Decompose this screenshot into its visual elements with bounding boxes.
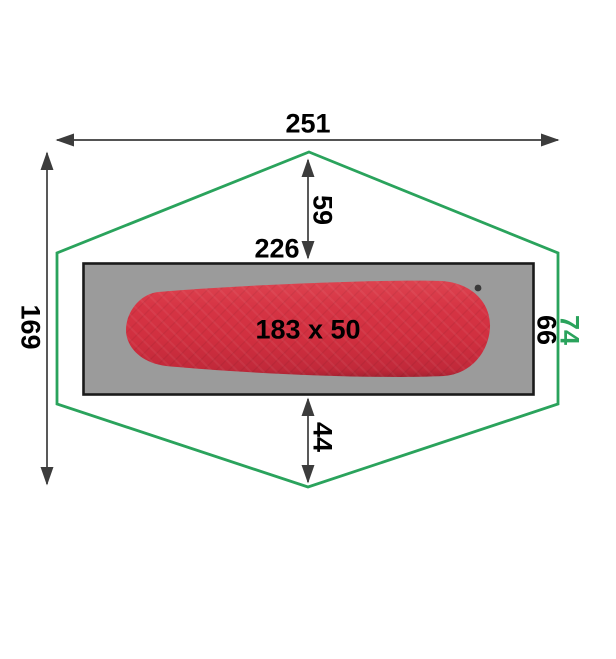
- mat-size-label: 183 x 50: [255, 317, 360, 344]
- dim-label-floor-width: 226: [254, 236, 299, 263]
- tent-dimension-diagram: 251 169 59 226 66 74 44 183 x 50: [0, 0, 616, 659]
- dim-label-outer-width: 251: [285, 111, 330, 138]
- dim-label-side-length: 74: [556, 315, 583, 345]
- dim-label-rear-apex-depth: 44: [309, 422, 336, 452]
- mat-valve: [475, 285, 482, 292]
- dim-label-outer-height: 169: [17, 304, 44, 349]
- dim-label-front-apex-depth: 59: [309, 195, 336, 225]
